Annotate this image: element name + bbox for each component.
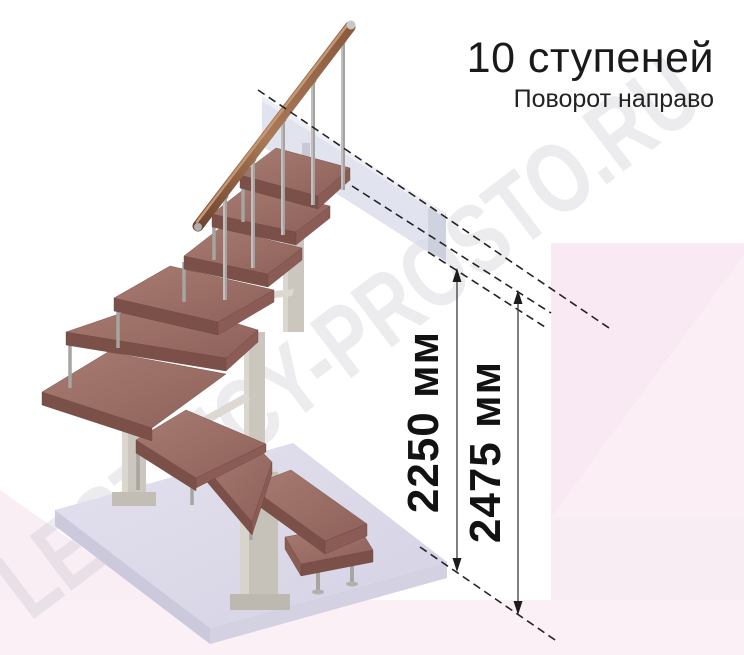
arrowhead-up xyxy=(514,290,523,304)
staircase-diagram-page: LESTNICY-PROSTO.RU xyxy=(0,0,744,655)
dimension-2475: 2475 мм xyxy=(461,290,523,615)
handrail-end-fitting xyxy=(194,223,202,231)
left-column-base xyxy=(112,492,156,506)
dimension-label-2475: 2475 мм xyxy=(461,361,510,543)
handrail-top-cap xyxy=(347,21,356,30)
rod-base xyxy=(312,590,324,595)
main-column-base xyxy=(230,594,290,610)
dimension-label-2250: 2250 мм xyxy=(399,331,448,513)
rod-base xyxy=(346,582,358,587)
page-title: 10 ступеней xyxy=(467,36,714,81)
page-subtitle: Поворот направо xyxy=(467,85,714,114)
header: 10 ступеней Поворот направо xyxy=(467,36,714,114)
pink-band-bottom xyxy=(0,600,744,655)
